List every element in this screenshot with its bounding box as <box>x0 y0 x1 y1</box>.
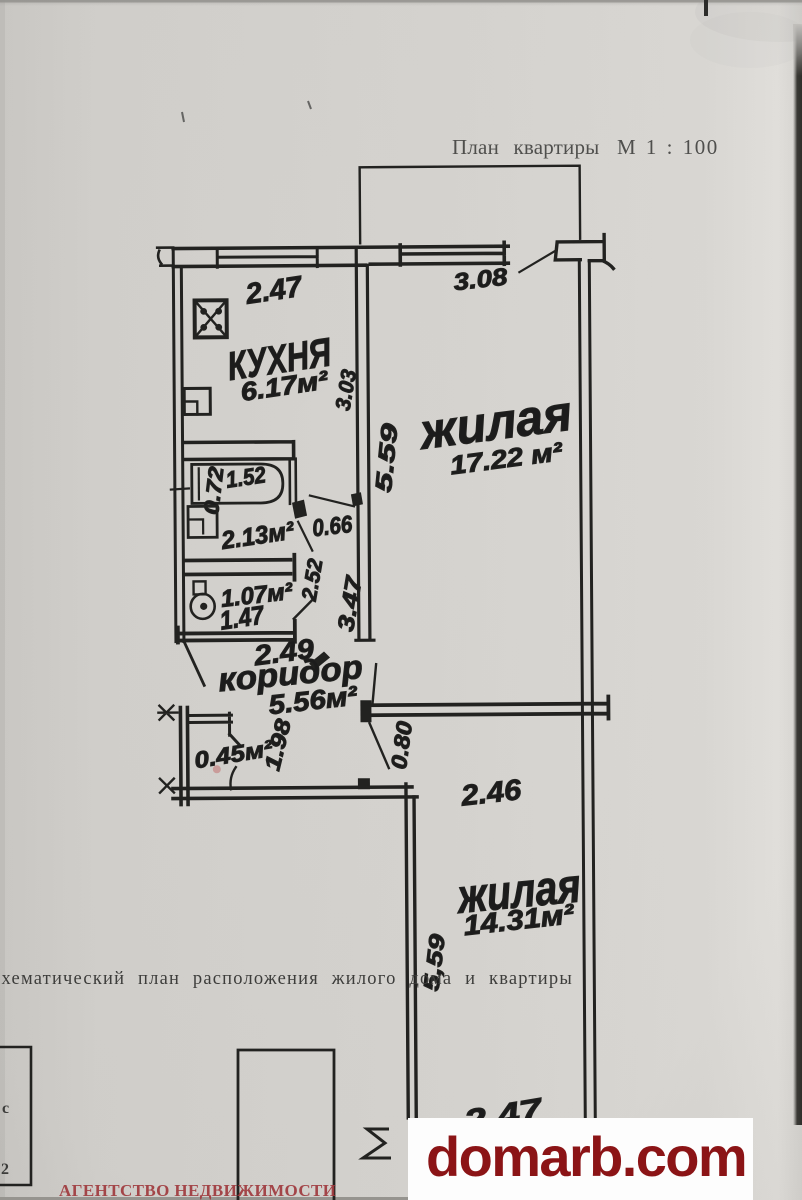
svg-text:с: с <box>2 1100 9 1117</box>
svg-text:М 1 : 100: М 1 : 100 <box>617 135 719 159</box>
svg-text:АГЕНТСТВО НЕДВИЖИМОСТИ: АГЕНТСТВО НЕДВИЖИМОСТИ <box>59 1181 336 1200</box>
svg-text:2: 2 <box>1 1161 9 1178</box>
svg-text:0.66: 0.66 <box>311 511 354 542</box>
svg-text:domarb.com: domarb.com <box>426 1125 746 1188</box>
svg-text:Схематический план расположени: Схематический план расположения жилого д… <box>0 969 573 989</box>
svg-text:План квартиры: План квартиры <box>452 135 599 159</box>
